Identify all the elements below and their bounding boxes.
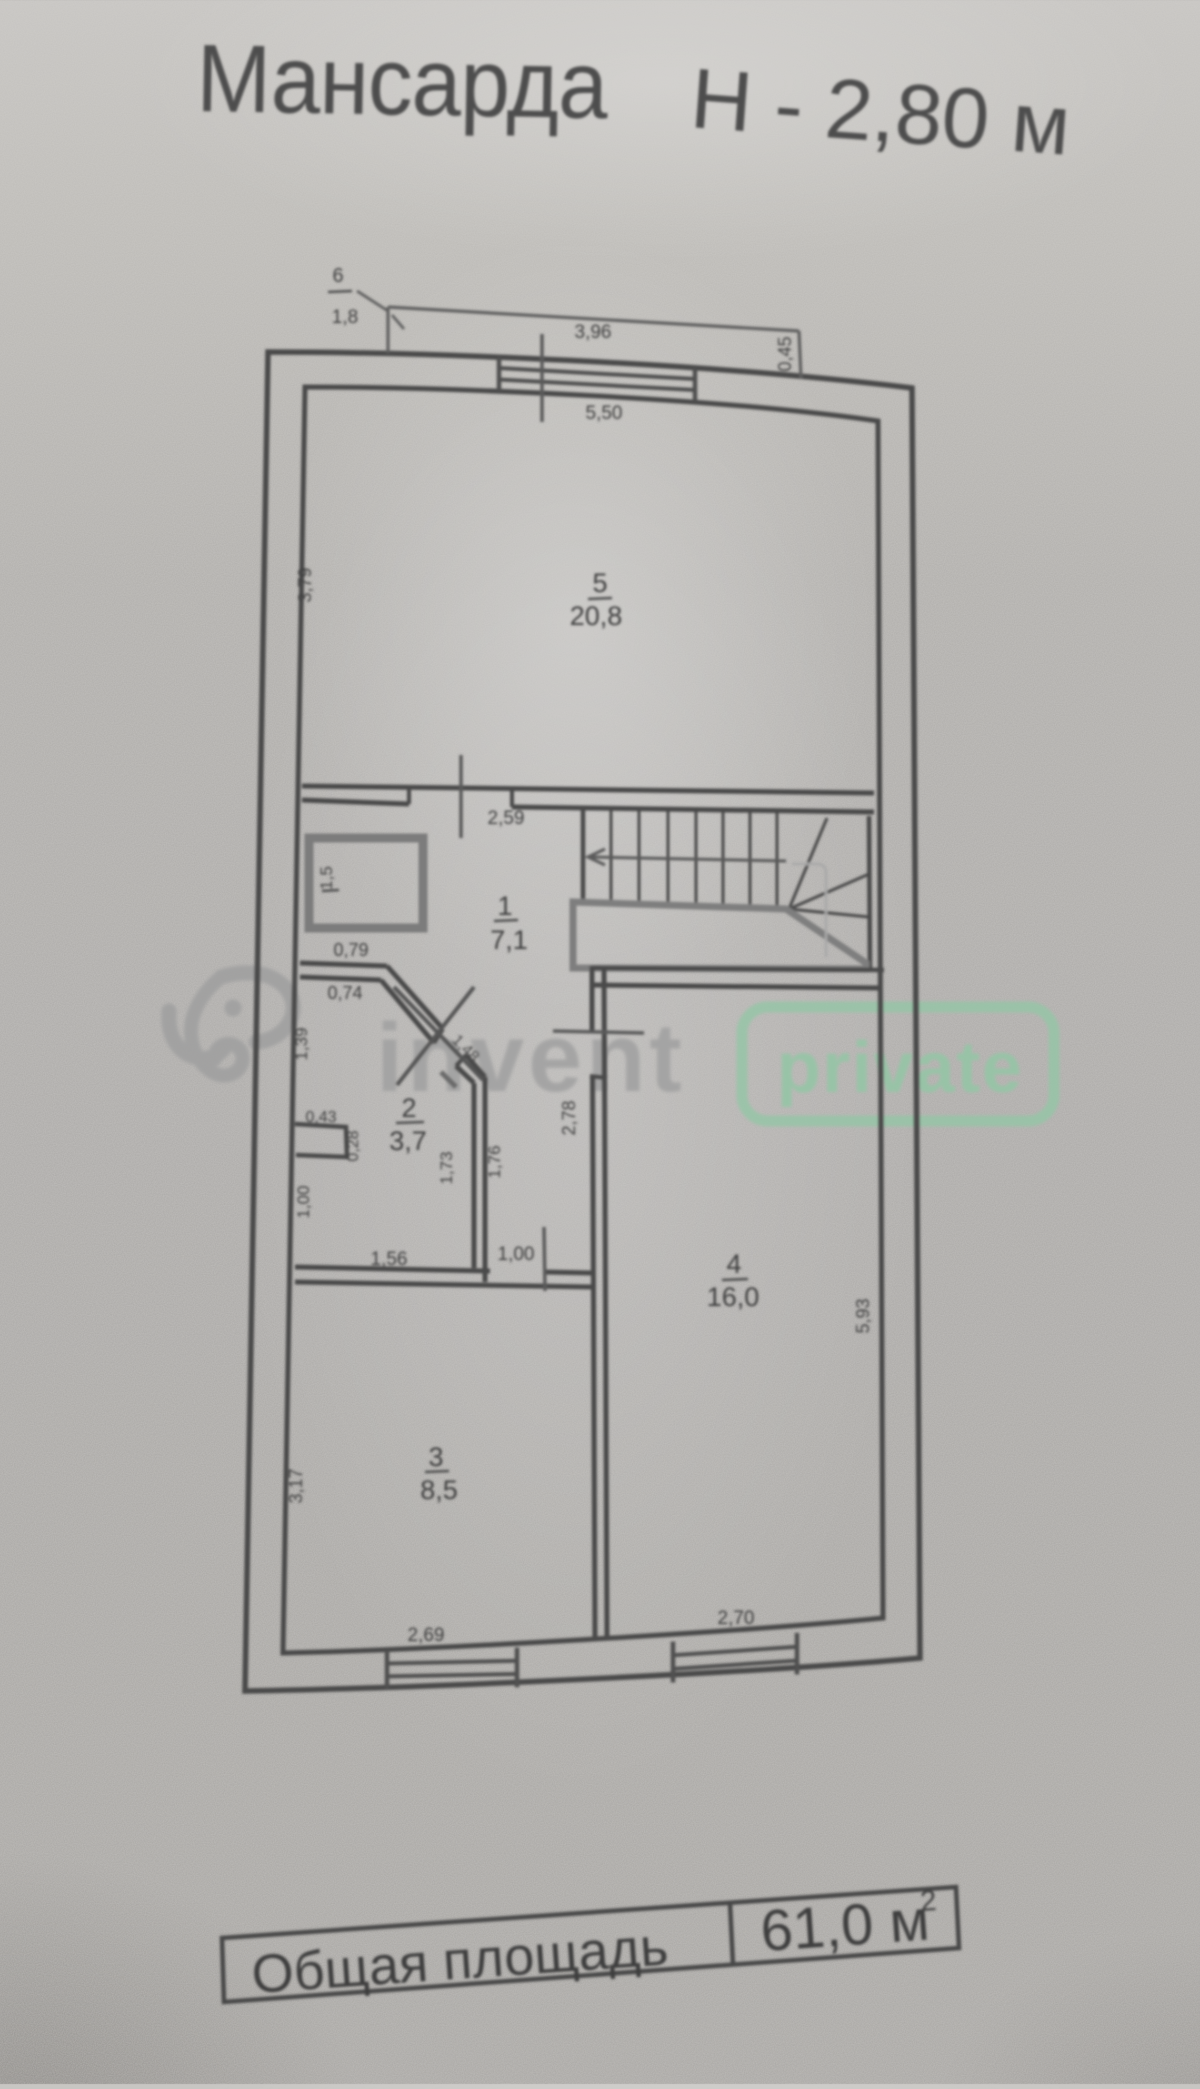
svg-text:4: 4 — [726, 1249, 741, 1279]
svg-text:1,56: 1,56 — [371, 1249, 408, 1270]
svg-text:20,8: 20,8 — [570, 601, 623, 631]
svg-text:2,78: 2,78 — [559, 1100, 579, 1135]
svg-text:1,76: 1,76 — [485, 1145, 504, 1178]
svg-text:3,7: 3,7 — [389, 1126, 427, 1156]
svg-text:2,70: 2,70 — [718, 1608, 755, 1629]
svg-text:Мансарда: Мансарда — [196, 24, 610, 139]
svg-text:2: 2 — [401, 1093, 416, 1123]
svg-text:0,43: 0,43 — [305, 1109, 336, 1126]
svg-text:1: 1 — [497, 891, 512, 921]
svg-text:3: 3 — [428, 1442, 443, 1472]
svg-text:2,69: 2,69 — [408, 1625, 445, 1646]
svg-text:0,74: 0,74 — [327, 983, 362, 1003]
svg-text:2,59: 2,59 — [488, 808, 525, 829]
svg-text:7,1: 7,1 — [490, 925, 528, 955]
svg-text:1,8: 1,8 — [332, 307, 358, 328]
svg-text:5,50: 5,50 — [586, 403, 623, 424]
svg-text:1,39: 1,39 — [292, 1027, 311, 1060]
svg-text:5,93: 5,93 — [853, 1298, 873, 1333]
svg-text:3,79: 3,79 — [295, 567, 315, 602]
svg-text:61,0 м: 61,0 м — [758, 1887, 931, 1963]
svg-text:0,79: 0,79 — [333, 940, 368, 960]
svg-text:3,96: 3,96 — [575, 322, 612, 343]
svg-text:0,28: 0,28 — [345, 1130, 362, 1161]
svg-text:8,5: 8,5 — [420, 1475, 458, 1505]
svg-text:5: 5 — [592, 568, 607, 598]
svg-text:1,00: 1,00 — [498, 1244, 535, 1265]
svg-text:6: 6 — [332, 265, 343, 287]
svg-text:0,45: 0,45 — [775, 336, 795, 371]
svg-text:private: private — [777, 1028, 1024, 1108]
svg-text:1,00: 1,00 — [294, 1185, 313, 1218]
svg-text:2: 2 — [919, 1885, 937, 1918]
svg-text:1,5: 1,5 — [317, 866, 336, 890]
svg-text:16,0: 16,0 — [707, 1282, 760, 1312]
svg-text:1,73: 1,73 — [437, 1151, 456, 1184]
svg-text:3,17: 3,17 — [286, 1468, 306, 1503]
